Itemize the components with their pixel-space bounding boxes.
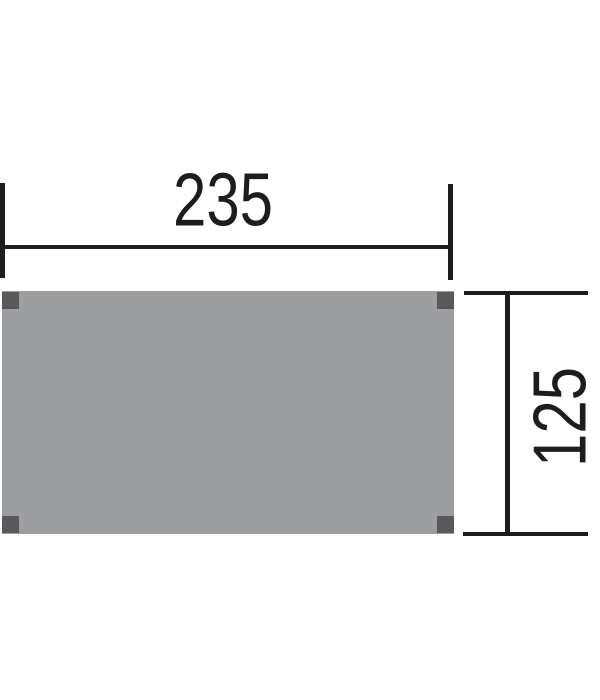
height-dimension-tick-bottom — [463, 532, 588, 536]
corner-post-top-left — [2, 292, 19, 309]
corner-post-bottom-right — [437, 516, 454, 533]
width-dimension-tick-right — [448, 184, 453, 280]
dimension-diagram: 235 125 — [0, 0, 600, 700]
corner-post-bottom-left — [2, 516, 19, 533]
height-dimension-label: 125 — [523, 367, 598, 467]
width-dimension-label: 235 — [173, 163, 273, 238]
width-dimension-tick-left — [0, 183, 5, 278]
corner-post-top-right — [437, 292, 454, 309]
width-dimension-line — [5, 245, 450, 249]
height-dimension-tick-top — [464, 291, 588, 295]
height-dimension-line — [505, 293, 510, 533]
floor-panel — [2, 291, 454, 534]
